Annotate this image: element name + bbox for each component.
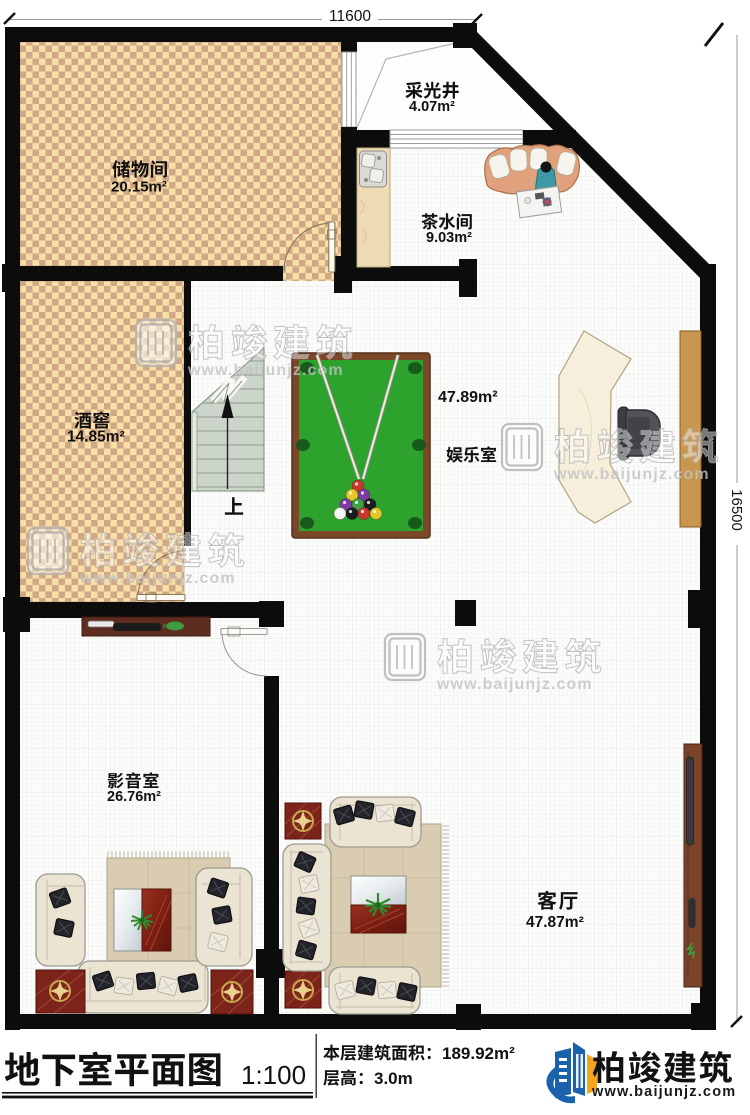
svg-text:14.85m²: 14.85m² (67, 429, 125, 446)
svg-text:16500: 16500 (728, 489, 745, 531)
svg-text:189.92m²: 189.92m² (442, 1044, 515, 1063)
svg-text:47.87m²: 47.87m² (526, 914, 584, 931)
svg-text:www.baijunjz.com: www.baijunjz.com (591, 1084, 736, 1100)
svg-text:26.76m²: 26.76m² (107, 789, 161, 805)
svg-text:9.03m²: 9.03m² (426, 230, 472, 246)
svg-text:47.89m²: 47.89m² (438, 389, 498, 406)
svg-text:3.0m: 3.0m (374, 1069, 413, 1088)
svg-text:4.07m²: 4.07m² (409, 99, 455, 115)
svg-text:1:100: 1:100 (241, 1060, 306, 1090)
svg-text:11600: 11600 (329, 8, 371, 25)
svg-text:20.15m²: 20.15m² (111, 179, 167, 196)
